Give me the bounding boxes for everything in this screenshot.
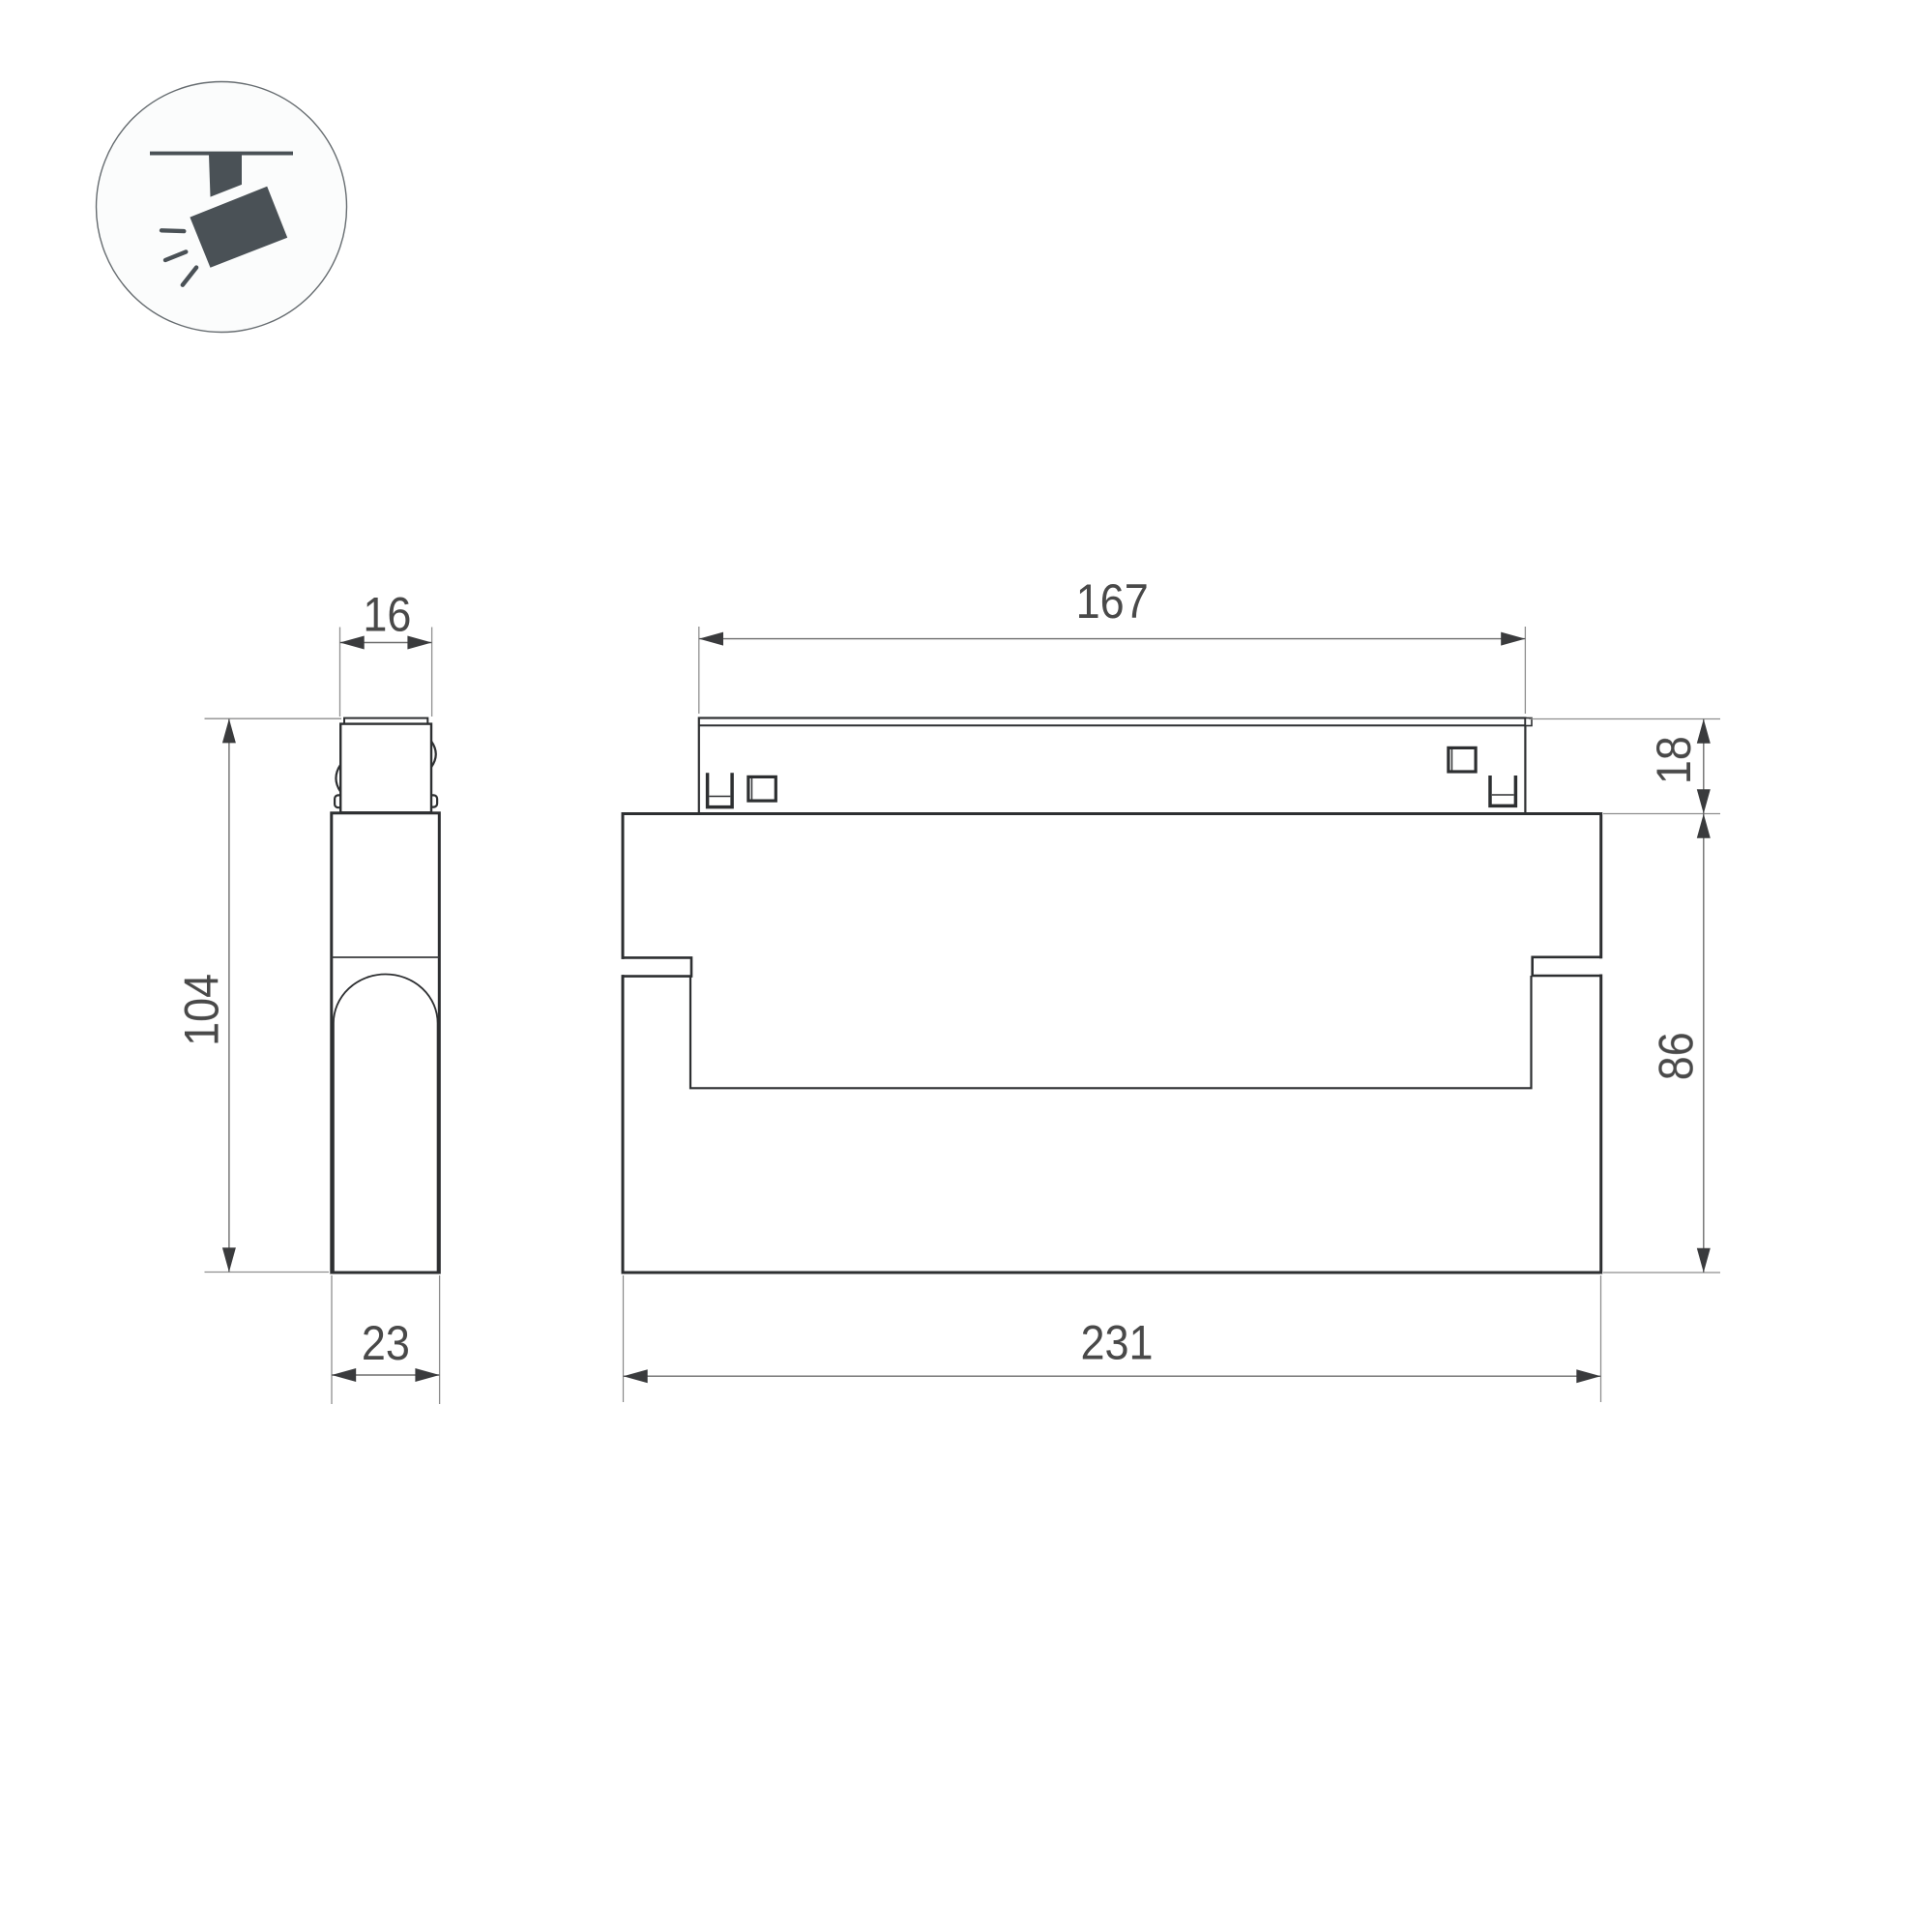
- svg-text:18: 18: [1648, 736, 1702, 784]
- svg-text:231: 231: [1080, 1316, 1153, 1370]
- svg-text:16: 16: [363, 588, 411, 642]
- svg-text:104: 104: [175, 974, 229, 1046]
- svg-text:167: 167: [1076, 575, 1149, 629]
- svg-text:86: 86: [1650, 1032, 1704, 1080]
- svg-text:23: 23: [362, 1317, 410, 1371]
